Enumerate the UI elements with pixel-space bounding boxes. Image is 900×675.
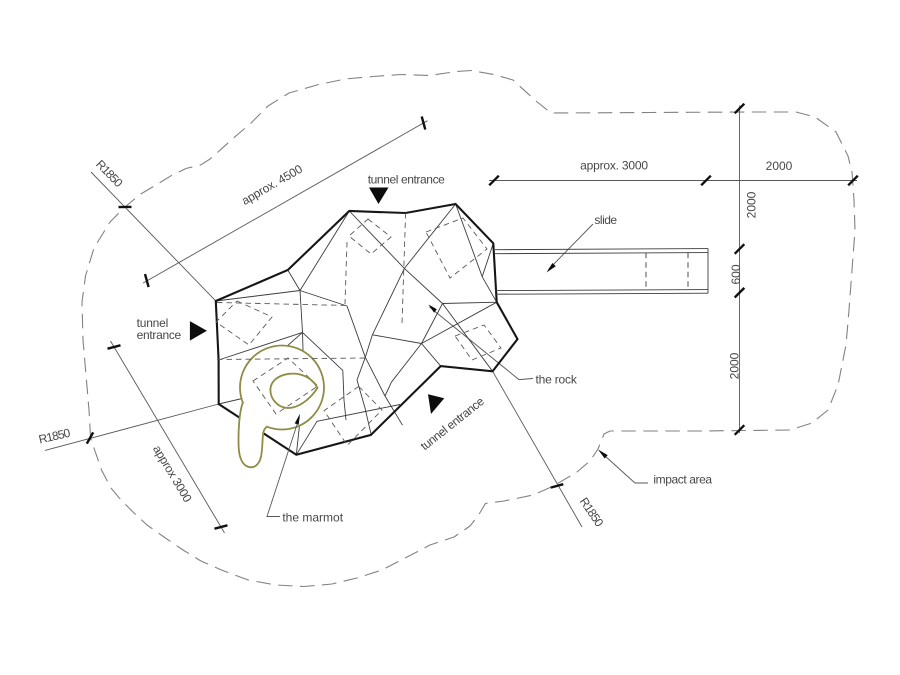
svg-text:entrance: entrance <box>137 328 182 342</box>
svg-text:approx. 3000: approx. 3000 <box>580 159 648 173</box>
svg-text:2000: 2000 <box>766 159 793 173</box>
svg-text:2000: 2000 <box>728 352 742 379</box>
svg-text:tunnel entrance: tunnel entrance <box>368 173 445 187</box>
svg-text:the rock: the rock <box>536 373 578 387</box>
svg-text:impact area: impact area <box>653 473 712 487</box>
svg-text:2000: 2000 <box>745 191 759 218</box>
svg-text:600: 600 <box>729 264 743 284</box>
svg-text:slide: slide <box>594 213 617 227</box>
svg-text:the marmot: the marmot <box>282 511 343 525</box>
